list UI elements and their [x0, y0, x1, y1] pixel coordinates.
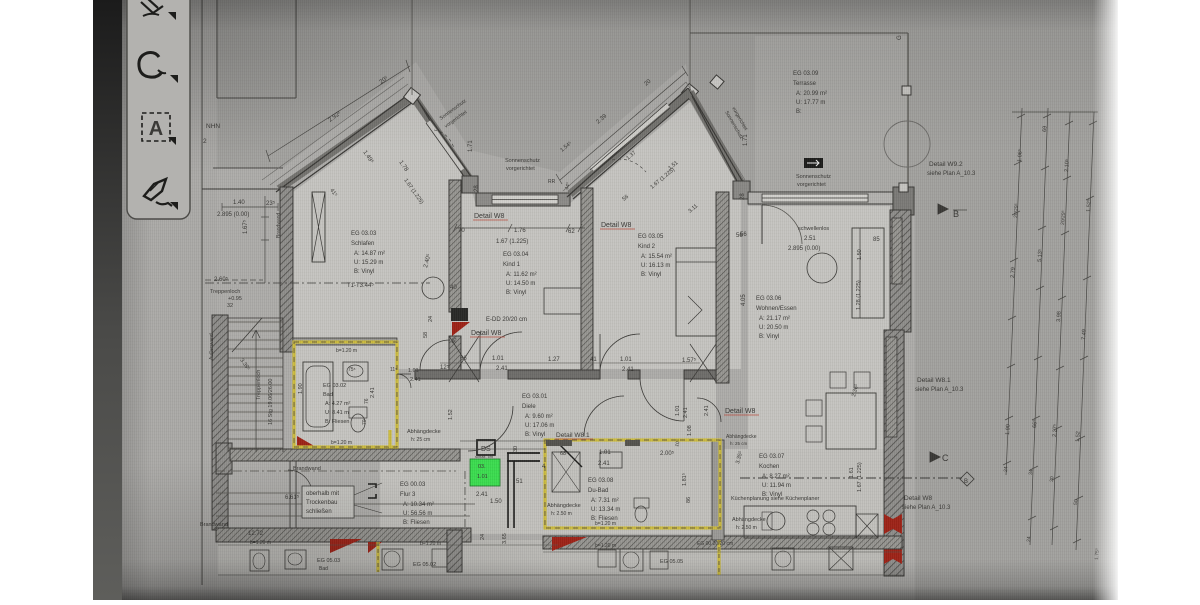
svg-text:U: 56.56 m: U: 56.56 m [403, 511, 432, 517]
svg-text:3.98: 3.98 [1056, 311, 1063, 322]
svg-text:EG 03.03: EG 03.03 [351, 231, 377, 237]
svg-text:Bad: Bad [323, 392, 333, 398]
svg-text:vorgerichtet: vorgerichtet [797, 182, 826, 188]
svg-text:66: 66 [460, 356, 467, 362]
svg-text:2.00⁵: 2.00⁵ [660, 450, 675, 457]
svg-text:2.79: 2.79 [1010, 267, 1017, 278]
svg-text:vorgerichtet: vorgerichtet [506, 166, 535, 172]
svg-text:1.06⁵: 1.06⁵ [1016, 149, 1024, 162]
svg-text:Detail W8: Detail W8 [725, 408, 755, 415]
svg-text:1.50: 1.50 [490, 499, 502, 505]
svg-text:EG 00.03: EG 00.03 [400, 482, 426, 488]
svg-text:4.05: 4.05 [741, 294, 747, 306]
svg-text:1.08: 1.08 [687, 425, 693, 436]
svg-text:69: 69 [1042, 126, 1048, 133]
svg-text:Brandwand: Brandwand [276, 212, 282, 238]
svg-text:EG 05.05: EG 05.05 [660, 559, 683, 565]
svg-text:70: 70 [362, 419, 368, 425]
svg-text:U: 13.34 m: U: 13.34 m [591, 507, 620, 513]
svg-text:U: 15.29 m: U: 15.29 m [354, 260, 383, 266]
svg-text:A: 20.99 m²: A: 20.99 m² [796, 91, 827, 97]
svg-text:EG 03.04: EG 03.04 [503, 252, 529, 258]
svg-text:1.76: 1.76 [514, 228, 526, 234]
svg-text:U: 11.94 m: U: 11.94 m [762, 483, 791, 489]
svg-text:1.01: 1.01 [492, 356, 504, 362]
svg-text:Detail W8: Detail W8 [601, 222, 631, 229]
svg-text:28: 28 [474, 185, 480, 192]
svg-text:schwellenlos: schwellenlos [798, 226, 829, 232]
svg-text:U: 16.13 m: U: 16.13 m [641, 263, 670, 269]
svg-text:h: 2.50 m: h: 2.50 m [736, 525, 757, 531]
svg-text:EG 03.08: EG 03.08 [588, 478, 614, 484]
svg-text:Außenwand: Außenwand [209, 333, 215, 360]
svg-text:66⁵: 66⁵ [1031, 419, 1039, 428]
svg-text:EG 00 20/20 cm: EG 00 20/20 cm [697, 541, 733, 547]
svg-text:Abhängdecke: Abhängdecke [407, 429, 441, 435]
svg-text:56: 56 [740, 232, 747, 238]
svg-text:B: B [964, 479, 968, 485]
svg-text:B: Vinyl: B: Vinyl [641, 272, 661, 278]
svg-text:Brandwand: Brandwand [200, 522, 228, 528]
svg-text:1.01: 1.01 [477, 474, 488, 480]
svg-text:schließen: schließen [306, 509, 332, 515]
svg-text:B: Fliesen: B: Fliesen [325, 419, 349, 425]
svg-text:A: 15.54 m²: A: 15.54 m² [641, 254, 672, 260]
svg-text:2.27⁵: 2.27⁵ [1051, 424, 1059, 437]
svg-text:A: A [149, 118, 163, 140]
svg-text:40: 40 [450, 285, 457, 291]
svg-text:1.27: 1.27 [548, 357, 560, 363]
svg-text:24: 24 [1026, 536, 1032, 542]
svg-text:h: 25 cm: h: 25 cm [411, 437, 430, 443]
svg-text:62: 62 [568, 229, 575, 235]
svg-text:A: 11.62 m²: A: 11.62 m² [506, 272, 537, 278]
svg-text:Abhängdecke: Abhängdecke [547, 503, 581, 509]
svg-text:24: 24 [1003, 466, 1009, 472]
svg-text:Detail W8: Detail W8 [904, 495, 933, 502]
svg-text:B: Vinyl: B: Vinyl [759, 334, 779, 340]
svg-text:20/29⁵: 20/29⁵ [1013, 203, 1020, 218]
svg-text:1.75⁵: 1.75⁵ [1094, 548, 1101, 560]
svg-text:EG 03.06: EG 03.06 [756, 296, 782, 302]
svg-text:EG 03.07: EG 03.07 [759, 454, 785, 460]
svg-text:A: 7.31 m²: A: 7.31 m² [591, 498, 619, 504]
svg-text:1.01: 1.01 [620, 357, 632, 363]
svg-text:schalt. cm: schalt. cm [475, 454, 494, 459]
svg-text:A: 4.27 m²: A: 4.27 m² [325, 401, 351, 407]
svg-text:Brandwand: Brandwand [293, 466, 321, 472]
svg-text:50: 50 [1073, 499, 1079, 505]
svg-text:A: 8.27 m²: A: 8.27 m² [762, 474, 790, 480]
svg-text:b=1.20 m: b=1.20 m [595, 521, 616, 527]
svg-text:86: 86 [686, 497, 692, 503]
svg-text:Flur 3: Flur 3 [400, 492, 416, 498]
svg-text:U: 8.41 m: U: 8.41 m [325, 410, 349, 416]
svg-text:b=1.20 m: b=1.20 m [250, 540, 271, 546]
svg-text:A: 14.87 m²: A: 14.87 m² [354, 251, 385, 257]
svg-text:E-DD 20/20 cm: E-DD 20/20 cm [486, 317, 527, 323]
svg-text:siehe Plan A_10.3: siehe Plan A_10.3 [915, 387, 964, 393]
svg-text:5.13⁵: 5.13⁵ [1036, 249, 1044, 262]
svg-text:Detail W8.1: Detail W8.1 [917, 377, 951, 384]
svg-text:2.41: 2.41 [622, 367, 634, 373]
svg-text:1.90: 1.90 [1005, 424, 1012, 435]
svg-text:32: 32 [227, 303, 233, 309]
svg-text:T1-T3.44⁵: T1-T3.44⁵ [347, 282, 374, 289]
svg-text:Du-Bad: Du-Bad [588, 488, 608, 494]
svg-text:23⁵: 23⁵ [266, 200, 276, 207]
svg-text:1.61: 1.61 [849, 467, 855, 478]
svg-text:1.57⁵: 1.57⁵ [682, 357, 697, 364]
svg-text:NHN: NHN [206, 123, 220, 130]
svg-text:2.41: 2.41 [476, 492, 488, 498]
svg-text:EG 03.01: EG 03.01 [522, 394, 548, 400]
svg-text:siehe Plan A_10.3: siehe Plan A_10.3 [927, 171, 976, 177]
svg-text:51: 51 [516, 479, 523, 485]
svg-text:+0.95: +0.95 [228, 296, 242, 302]
svg-text:76: 76 [364, 398, 370, 404]
svg-text:G: G [897, 35, 903, 40]
svg-text:Terrasse: Terrasse [793, 81, 817, 87]
svg-text:3.65: 3.65 [502, 533, 508, 544]
svg-text:EG 05.02: EG 05.02 [413, 562, 436, 568]
svg-text:A: 21.17 m²: A: 21.17 m² [759, 316, 790, 322]
svg-text:1.67 (1.225): 1.67 (1.225) [496, 239, 528, 245]
svg-text:Kochen: Kochen [759, 464, 779, 470]
svg-text:34: 34 [1028, 469, 1034, 475]
svg-text:Treppenloch: Treppenloch [210, 289, 240, 295]
svg-text:h: 25 cm: h: 25 cm [730, 441, 748, 446]
svg-text:30: 30 [513, 446, 519, 452]
svg-text:41: 41 [590, 357, 597, 363]
svg-text:12.72: 12.72 [248, 531, 264, 537]
svg-text:1.90: 1.90 [298, 383, 304, 394]
svg-text:EG 03.02: EG 03.02 [323, 383, 346, 389]
svg-text:U: 17.06 m: U: 17.06 m [525, 423, 554, 429]
svg-text:Detail W8.1: Detail W8.1 [556, 432, 590, 439]
svg-text:2.895 (0.00): 2.895 (0.00) [788, 246, 820, 252]
svg-text:EG 05.03: EG 05.03 [317, 558, 340, 564]
svg-text:1.81⁵: 1.81⁵ [681, 473, 688, 486]
svg-text:2.41: 2.41 [410, 377, 421, 383]
svg-text:85: 85 [873, 237, 880, 243]
svg-text:2.41: 2.41 [683, 407, 689, 418]
svg-text:Schlafen: Schlafen [351, 241, 374, 247]
svg-text:2.41: 2.41 [370, 387, 376, 398]
svg-text:b=1.20 m: b=1.20 m [420, 541, 441, 547]
svg-text:Sonnenschutz: Sonnenschutz [796, 174, 831, 180]
svg-text:Kind 1: Kind 1 [503, 262, 521, 268]
svg-text:Trockenbau: Trockenbau [306, 500, 337, 506]
svg-text:b=1.20 m: b=1.20 m [595, 543, 616, 549]
svg-text:1.01: 1.01 [408, 368, 419, 374]
svg-text:1.40: 1.40 [233, 200, 245, 206]
svg-text:7.49: 7.49 [1081, 329, 1088, 340]
svg-text:1.67 (1.225): 1.67 (1.225) [857, 462, 863, 492]
svg-text:Kind 2: Kind 2 [638, 244, 656, 250]
svg-text:U: 14.50 m: U: 14.50 m [506, 281, 535, 287]
svg-text:24: 24 [428, 316, 434, 322]
svg-text:Sonnenschutz: Sonnenschutz [505, 158, 540, 164]
svg-text:24: 24 [480, 534, 486, 540]
svg-text:2: 2 [203, 138, 207, 145]
svg-text:1.01: 1.01 [599, 450, 611, 456]
svg-text:16 Stg 19.06/26.00: 16 Stg 19.06/26.00 [268, 379, 274, 425]
svg-text:U: 20.50 m: U: 20.50 m [759, 325, 788, 331]
svg-text:2.41: 2.41 [496, 366, 508, 372]
svg-text:Küchenplanung siehe Küchenplan: Küchenplanung siehe Küchenplaner [731, 496, 820, 502]
svg-text:b=1.20 m: b=1.20 m [331, 440, 352, 446]
svg-text:70: 70 [458, 228, 465, 234]
svg-text:U: 17.77 m: U: 17.77 m [796, 100, 825, 106]
svg-text:1.50: 1.50 [857, 249, 863, 260]
svg-text:03.: 03. [478, 464, 486, 470]
svg-text:20/29⁵: 20/29⁵ [1060, 210, 1067, 225]
svg-text:1.52⁵: 1.52⁵ [1085, 199, 1093, 212]
svg-text:DS: DS [481, 446, 491, 453]
svg-text:28: 28 [740, 193, 746, 200]
svg-text:2.10⁵: 2.10⁵ [1063, 159, 1071, 172]
svg-text:Detail W9.2: Detail W9.2 [929, 161, 963, 168]
svg-text:A: 10.34 m²: A: 10.34 m² [403, 502, 434, 508]
svg-text:58: 58 [423, 332, 429, 338]
svg-text:siehe Plan A_10.3: siehe Plan A_10.3 [902, 505, 951, 511]
svg-text:2.41: 2.41 [704, 405, 710, 416]
svg-text:6.61⁵: 6.61⁵ [285, 494, 300, 501]
svg-text:1.01: 1.01 [675, 405, 681, 416]
svg-text:B:: B: [796, 109, 802, 115]
svg-text:B: Vinyl: B: Vinyl [506, 290, 526, 296]
svg-text:Detail W8: Detail W8 [474, 213, 504, 220]
svg-text:Treppenloch: Treppenloch [256, 370, 262, 400]
svg-text:Wohnen/Essen: Wohnen/Essen [756, 306, 797, 312]
svg-text:1.52: 1.52 [448, 409, 454, 420]
svg-text:1.67⁵: 1.67⁵ [242, 219, 249, 234]
svg-text:75⁵: 75⁵ [348, 367, 356, 373]
svg-text:Detail W8: Detail W8 [471, 330, 501, 337]
svg-text:B: Vinyl: B: Vinyl [354, 269, 374, 275]
svg-text:1.71: 1.71 [468, 140, 474, 152]
svg-text:h: 2.50 m: h: 2.50 m [551, 511, 572, 517]
svg-text:1.52: 1.52 [1075, 431, 1082, 442]
svg-text:30: 30 [1049, 476, 1055, 482]
svg-text:1.71: 1.71 [743, 134, 749, 146]
svg-text:EG 03.09: EG 03.09 [793, 71, 819, 77]
svg-text:EG 03.05: EG 03.05 [638, 234, 664, 240]
svg-text:68⁵: 68⁵ [560, 450, 568, 457]
svg-text:A: 9.60 m²: A: 9.60 m² [525, 414, 553, 420]
svg-text:2.895 (0.00): 2.895 (0.00) [217, 212, 249, 218]
svg-text:oberhalb mit: oberhalb mit [306, 491, 339, 497]
svg-text:Bad: Bad [319, 566, 328, 572]
svg-text:RR: RR [548, 179, 556, 185]
svg-text:12⁵: 12⁵ [440, 364, 450, 371]
svg-text:2.51: 2.51 [804, 236, 816, 242]
svg-text:11⁵: 11⁵ [390, 367, 397, 373]
svg-text:Abhängdecke: Abhängdecke [732, 517, 766, 523]
svg-text:B: Vinyl: B: Vinyl [525, 432, 545, 438]
svg-text:1.28 (1.225): 1.28 (1.225) [856, 280, 862, 310]
svg-text:2.60⁵: 2.60⁵ [214, 276, 229, 283]
svg-text:C: C [942, 453, 949, 463]
svg-text:B: B [953, 209, 959, 219]
svg-text:Diele: Diele [522, 404, 536, 410]
svg-text:2.41: 2.41 [598, 461, 610, 467]
svg-text:b=1.20 m: b=1.20 m [336, 348, 357, 354]
svg-text:Abhängdecke: Abhängdecke [726, 434, 757, 440]
svg-text:B: Fliesen: B: Fliesen [403, 520, 430, 526]
